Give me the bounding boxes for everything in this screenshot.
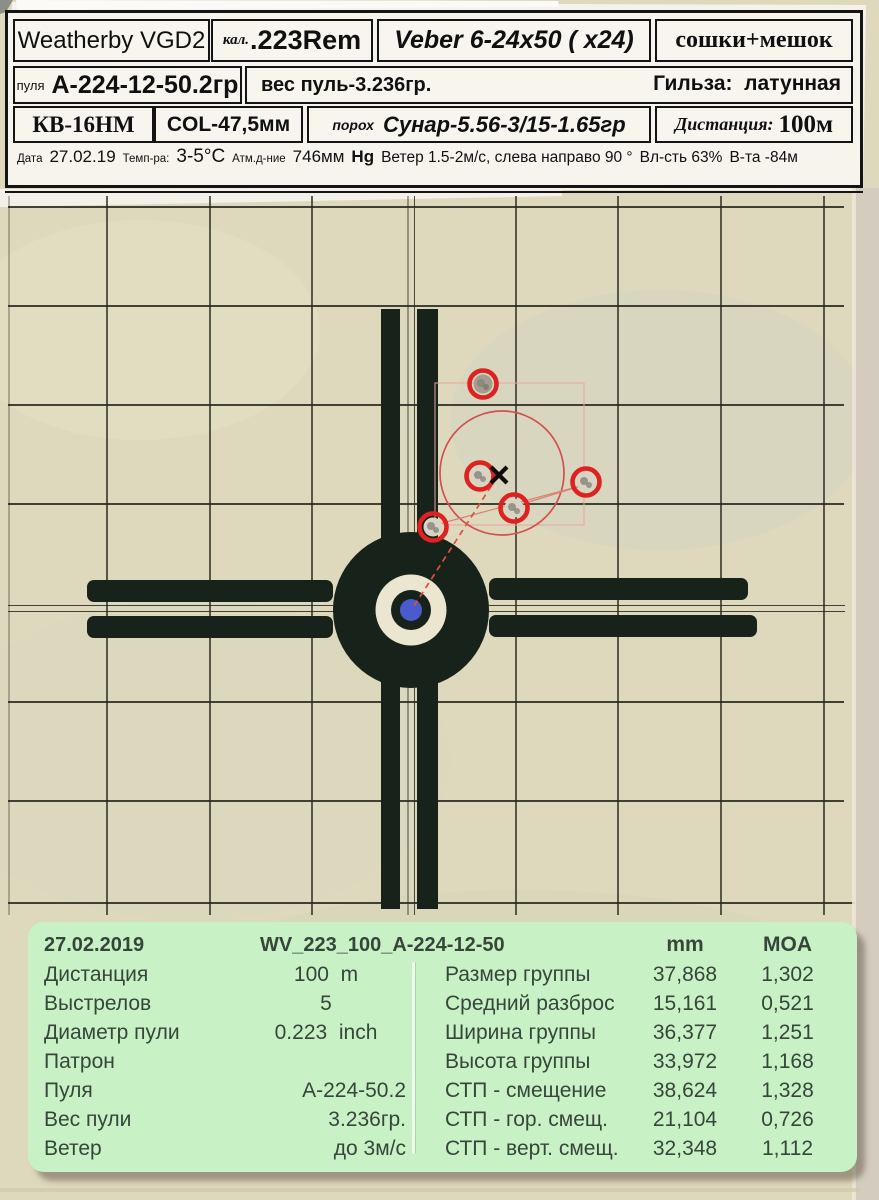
stat-moa: 1,168 [740, 1050, 835, 1074]
col-cell: COL-47,5мм [154, 106, 303, 143]
wind-info: Ветер 1.5-2м/с, слева направо 90 ° [381, 149, 633, 167]
stat-moa: 0,726 [740, 1108, 835, 1132]
temp-label: Темп-ра: [123, 153, 170, 165]
stat-value: 0.223 inch [246, 1021, 414, 1045]
stat-label: Патрон [44, 1050, 115, 1074]
column-header-moa: MOA [740, 933, 835, 957]
col-value: COL-47,5мм [167, 113, 290, 137]
distance-label: Дистанция: [675, 114, 774, 135]
conditions-row: Дата 27.02.19 Темп-ра: 3-5°С Атм.д-ние 7… [8, 146, 867, 180]
stat-value: 100 m [246, 963, 414, 987]
stat-label: Средний разброс [445, 992, 615, 1016]
caliber-cell: кал. .223Rem [211, 19, 373, 62]
powder-label: порох [332, 117, 374, 133]
rifle-name: Weatherby VGD2 [18, 27, 206, 55]
date-label: Дата [17, 153, 42, 165]
bullet-hole-4 [501, 495, 528, 522]
scope-cell: Veber 6-24x50 ( x24) [377, 19, 651, 62]
primer-type: КВ-16НМ [32, 112, 134, 138]
scope-name: Veber 6-24x50 ( x24) [394, 26, 634, 55]
stat-mm: 15,161 [636, 992, 734, 1016]
bullet-hole-3 [573, 469, 600, 496]
powder-charge: Сунар-5.56-3/15-1.65гр [383, 112, 626, 138]
case-info: Гильза: латунная [653, 72, 841, 96]
session-name: WV_223_100_А-224-12-50 [260, 934, 505, 957]
pressure-unit: Hg [351, 147, 374, 167]
stat-moa: 1,251 [740, 1021, 835, 1045]
stat-mm: 37,868 [636, 963, 734, 987]
stat-label: Высота группы [445, 1050, 590, 1074]
target-scan-page: Weatherby VGD2 кал. .223Rem Veber 6-24x5… [0, 0, 879, 1200]
powder-cell: порох Сунар-5.56-3/15-1.65гр [307, 106, 651, 143]
stat-value: 3.236гр. [246, 1108, 414, 1132]
column-header-mm: mm [636, 933, 734, 957]
session-date: 27.02.2019 [44, 934, 144, 957]
stat-mm: 36,377 [636, 1021, 734, 1045]
bullet-cell: пуля А-224-12-50.2гр [13, 66, 242, 104]
rest-type: сошки+мешок [675, 27, 832, 54]
bullet-hole-1 [470, 371, 497, 398]
primer-cell: КВ-16НМ [13, 106, 154, 143]
stats-panel: 27.02.2019 WV_223_100_А-224-12-50 mm MOA… [28, 922, 857, 1172]
stat-label: Ветер [44, 1137, 102, 1161]
stat-label: Выстрелов [44, 992, 151, 1016]
aim-point-dot [400, 599, 422, 621]
bullet-weight-cell: вес пуль-3.236гр. Гильза: латунная [245, 66, 853, 104]
stat-label: Вес пули [44, 1108, 131, 1132]
stat-mm: 32,348 [636, 1137, 734, 1161]
caliber-value: .223Rem [250, 25, 361, 56]
bullet-hole-5 [420, 514, 447, 541]
stat-label: СТП - верт. смещ. [445, 1137, 619, 1161]
stat-label: Пуля [44, 1079, 93, 1103]
bullet-name: А-224-12-50.2гр [52, 71, 239, 100]
altitude-info: В-та -84м [729, 149, 797, 167]
distance-value: 100м [779, 111, 834, 139]
stat-moa: 0,521 [740, 992, 835, 1016]
bullet-weight: вес пуль-3.236гр. [261, 74, 431, 97]
date-value: 27.02.19 [49, 147, 115, 167]
stat-value: А-224-50.2 [246, 1079, 414, 1103]
stat-mm: 38,624 [636, 1079, 734, 1103]
stat-label: Диаметр пули [44, 1021, 180, 1045]
stat-mm: 33,972 [636, 1050, 734, 1074]
bullet-label: пуля [17, 78, 45, 93]
stat-value: 5 [246, 992, 414, 1016]
stat-label: СТП - гор. смещ. [445, 1108, 608, 1132]
stat-moa: 1,112 [740, 1137, 835, 1161]
stat-mm: 21,104 [636, 1108, 734, 1132]
load-data-table: Weatherby VGD2 кал. .223Rem Veber 6-24x5… [5, 10, 863, 188]
stat-moa: 1,328 [740, 1079, 835, 1103]
stat-label: Ширина группы [445, 1021, 596, 1045]
rifle-cell: Weatherby VGD2 [13, 19, 210, 62]
caliber-label: кал. [223, 32, 249, 49]
pressure-value: 746мм [293, 147, 345, 167]
stat-label: Дистанция [44, 963, 148, 987]
humidity-info: Вл-сть 63% [640, 149, 723, 167]
scan-edge-strip [855, 188, 879, 1200]
stat-label: Размер группы [445, 963, 590, 987]
stat-moa: 1,302 [740, 963, 835, 987]
stat-label: СТП - смещение [445, 1079, 606, 1103]
stat-value: до 3м/с [246, 1137, 414, 1161]
temp-value: 3-5°С [176, 146, 225, 168]
pressure-label: Атм.д-ние [232, 153, 286, 165]
rest-cell: сошки+мешок [655, 19, 853, 62]
bullet-hole-2 [467, 463, 494, 490]
distance-cell: Дистанция: 100м [655, 106, 853, 143]
